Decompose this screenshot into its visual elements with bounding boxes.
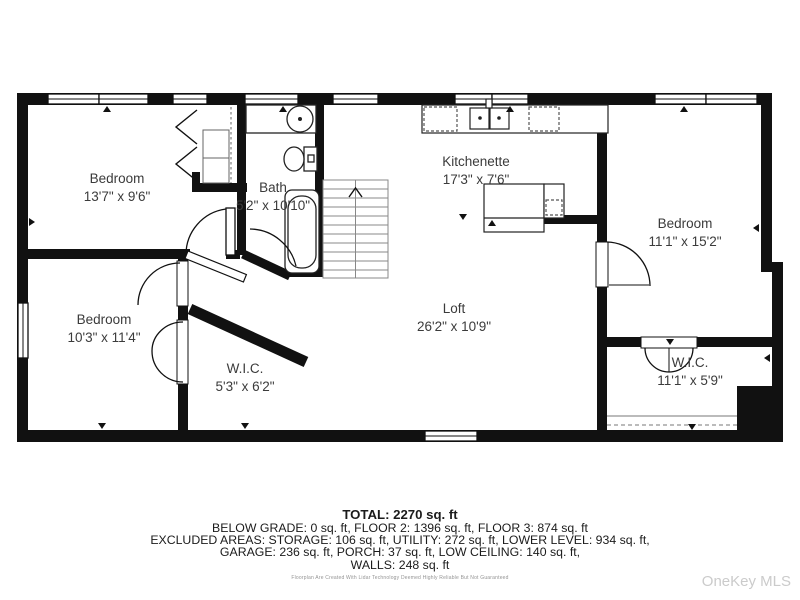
room-name: Bedroom [67,311,140,329]
door-leaf [177,320,188,384]
room-label-wic-left: W.I.C. 5'3" x 6'2" [215,360,274,396]
closet [176,107,231,183]
room-dims: 11'1" x 15'2" [648,233,721,251]
stairs [323,180,388,278]
toilet-bowl [284,147,304,171]
door-swing [607,242,650,286]
watermark: OneKey MLS [702,573,791,590]
area-summary: TOTAL: 2270 sq. ft BELOW GRADE: 0 sq. ft… [0,508,800,571]
summary-line: WALLS: 248 sq. ft [0,559,800,571]
room-dims: 5'3" x 6'2" [215,378,274,396]
room-name: Bedroom [84,170,151,188]
room-name: Bedroom [648,215,721,233]
room-name: Loft [417,300,491,318]
room-label-bedroom-right: Bedroom 11'1" x 15'2" [648,215,721,251]
floorplan-image: Bedroom 13'7" x 9'6" Bath 5'2" x 10'10" … [0,0,800,600]
kitchen-faucet [486,99,492,108]
summary-line: GARAGE: 236 sq. ft, PORCH: 37 sq. ft, LO… [0,546,800,558]
bifold-door [176,110,197,144]
low-ceiling-lines [607,416,737,425]
room-dims: 11'1" x 5'9" [657,372,723,390]
kitchen-counter [422,105,608,133]
interior-walls [17,105,783,442]
room-label-kitchenette: Kitchenette 17'3" x 7'6" [442,153,510,189]
door-leaf [177,261,188,306]
room-name: W.I.C. [215,360,274,378]
door-leaf [226,208,235,255]
room-dims: 5'2" x 10'10" [236,197,310,215]
room-name: W.I.C. [657,354,723,372]
total-area: TOTAL: 2270 sq. ft [0,508,800,522]
room-name: Bath [236,179,310,197]
room-label-loft: Loft 26'2" x 10'9" [417,300,491,336]
room-label-bedroom-bottom-left: Bedroom 10'3" x 11'4" [67,311,140,347]
door-leaf [596,242,608,287]
room-dims: 26'2" x 10'9" [417,318,491,336]
room-label-bedroom-top-left: Bedroom 13'7" x 9'6" [84,170,151,206]
chimney-block [737,386,783,442]
disclaimer-text: Floorplan Are Created With Lidar Technol… [0,575,800,581]
door-swing [138,263,180,305]
room-dims: 13'7" x 9'6" [84,188,151,206]
room-dims: 17'3" x 7'6" [442,171,510,189]
door-swing [186,209,226,255]
room-name: Kitchenette [442,153,510,171]
room-dims: 10'3" x 11'4" [67,329,140,347]
doors [138,208,697,384]
room-label-bath: Bath 5'2" x 10'10" [236,179,310,215]
room-label-wic-right: W.I.C. 11'1" x 5'9" [657,354,723,390]
